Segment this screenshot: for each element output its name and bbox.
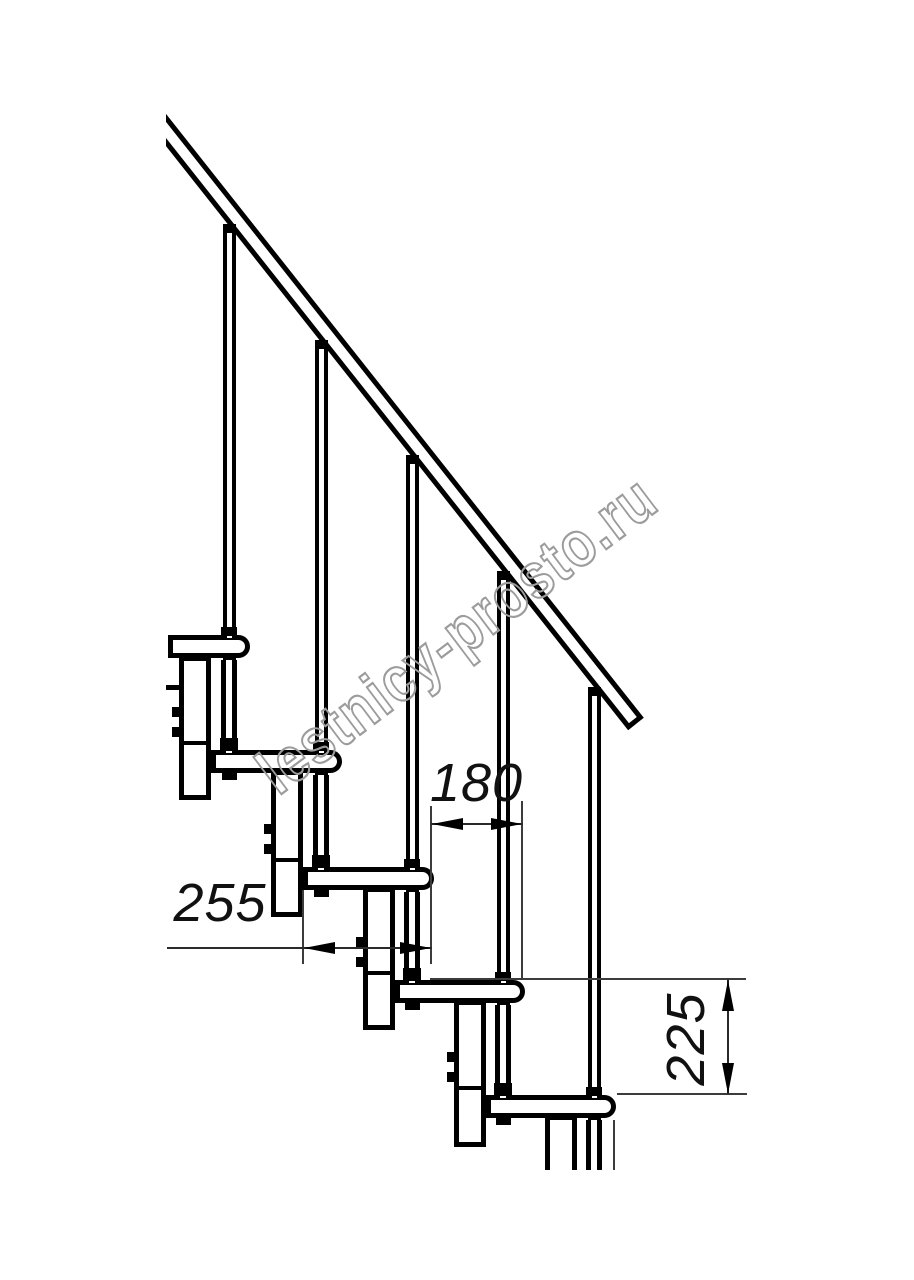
- dimension-line: [167, 947, 432, 949]
- post-bottom-bolt: [222, 772, 237, 780]
- dimension-run-label: 180: [424, 756, 529, 810]
- tread-2: [211, 750, 342, 773]
- post-foot: [494, 1083, 512, 1096]
- support-post-5: [586, 1120, 602, 1170]
- arrow-right-icon: [491, 818, 522, 830]
- handrail-clip: [166, 0, 914, 1270]
- post-foot: [220, 738, 238, 751]
- arrow-down-icon: [722, 1063, 734, 1094]
- post-bottom-bolt: [405, 1002, 420, 1010]
- baluster-foot: [586, 1087, 602, 1096]
- column-module-1: [179, 656, 211, 800]
- extension-line: [613, 1120, 615, 1170]
- baluster-rail-cap: [315, 340, 328, 349]
- extension-line: [430, 978, 746, 980]
- baluster-foot: [221, 627, 237, 636]
- tread-1: [168, 635, 250, 658]
- baluster-1: [223, 231, 236, 638]
- dimension-rise-label: 225: [659, 981, 713, 1097]
- column-tab: [447, 1072, 455, 1082]
- column-joint-line: [183, 741, 207, 745]
- baluster-foot: [404, 859, 420, 868]
- arrow-left-icon: [304, 942, 335, 954]
- baluster-rail-cap: [497, 571, 510, 580]
- baluster-5: [588, 694, 601, 1098]
- dimension-depth-label: 255: [160, 876, 280, 930]
- baluster-rail-cap: [588, 687, 601, 696]
- baluster-rail-cap: [406, 455, 419, 464]
- arrow-up-icon: [722, 980, 734, 1011]
- tread-3: [303, 867, 434, 890]
- column-joint-line: [275, 858, 299, 862]
- arrow-left-icon: [432, 818, 463, 830]
- column-joint-line: [367, 971, 391, 975]
- column-tab: [356, 957, 364, 967]
- column-tab: [172, 707, 180, 717]
- post-bottom-bolt: [314, 889, 329, 897]
- column-tab: [172, 727, 180, 737]
- baluster-2: [315, 347, 328, 753]
- column-joint-line: [458, 1086, 482, 1090]
- baluster-rail-cap: [223, 224, 236, 233]
- tread-5: [486, 1095, 616, 1118]
- post-bottom-bolt: [496, 1117, 511, 1125]
- post-foot: [312, 855, 330, 868]
- baluster-3: [406, 462, 419, 870]
- column-tab: [264, 824, 272, 834]
- drawing-canvas: 180 255 225 lestnicy-prosto.ru: [0, 0, 914, 1280]
- cropped-stub-line: [166, 685, 180, 690]
- column-module-5: [545, 1115, 577, 1170]
- tread-4: [395, 980, 525, 1003]
- column-module-3: [363, 887, 395, 1030]
- baluster-foot: [313, 742, 329, 751]
- column-tab: [264, 844, 272, 854]
- column-tab: [356, 937, 364, 947]
- arrow-right-icon: [400, 942, 431, 954]
- column-module-4: [454, 1000, 486, 1147]
- column-tab: [447, 1052, 455, 1062]
- post-foot: [403, 968, 421, 981]
